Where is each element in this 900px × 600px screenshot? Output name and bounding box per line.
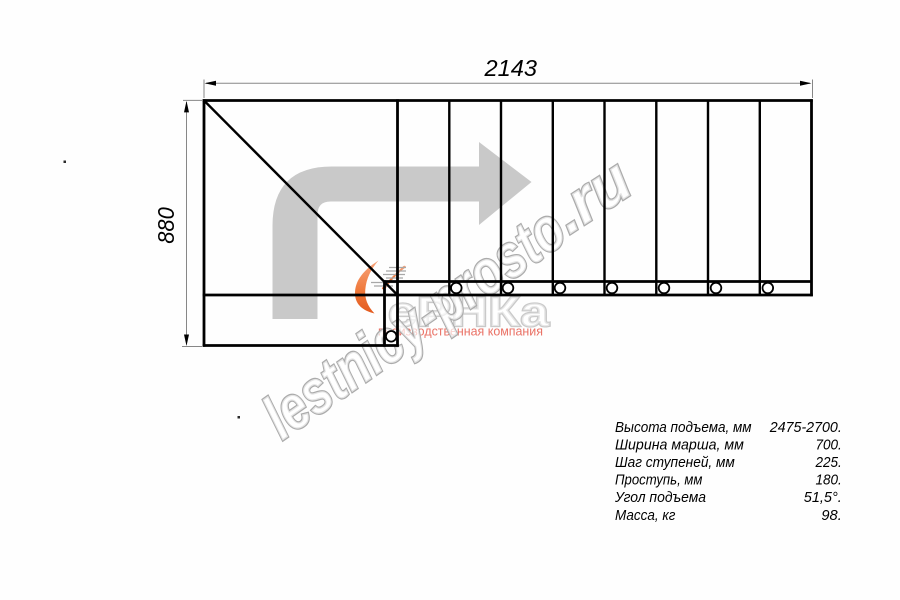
svg-text:Шаг ступеней, мм: Шаг ступеней, мм — [615, 454, 735, 471]
svg-text:2143: 2143 — [484, 55, 538, 81]
svg-text:180.: 180. — [816, 472, 842, 489]
svg-text:Проступь, мм: Проступь, мм — [615, 472, 702, 489]
svg-text:98.: 98. — [821, 507, 841, 524]
svg-text:Угол подъема: Угол подъема — [614, 489, 706, 506]
svg-text:880: 880 — [153, 207, 179, 244]
svg-text:700.: 700. — [816, 436, 842, 453]
svg-text:2475-2700.: 2475-2700. — [769, 419, 842, 436]
svg-text:Масса, кг: Масса, кг — [615, 507, 676, 524]
svg-text:Высота подъема, мм: Высота подъема, мм — [615, 419, 752, 436]
svg-text:Ширина марша, мм: Ширина марша, мм — [615, 436, 744, 453]
svg-text:225.: 225. — [815, 454, 842, 471]
svg-text:51,5°.: 51,5°. — [804, 489, 842, 506]
